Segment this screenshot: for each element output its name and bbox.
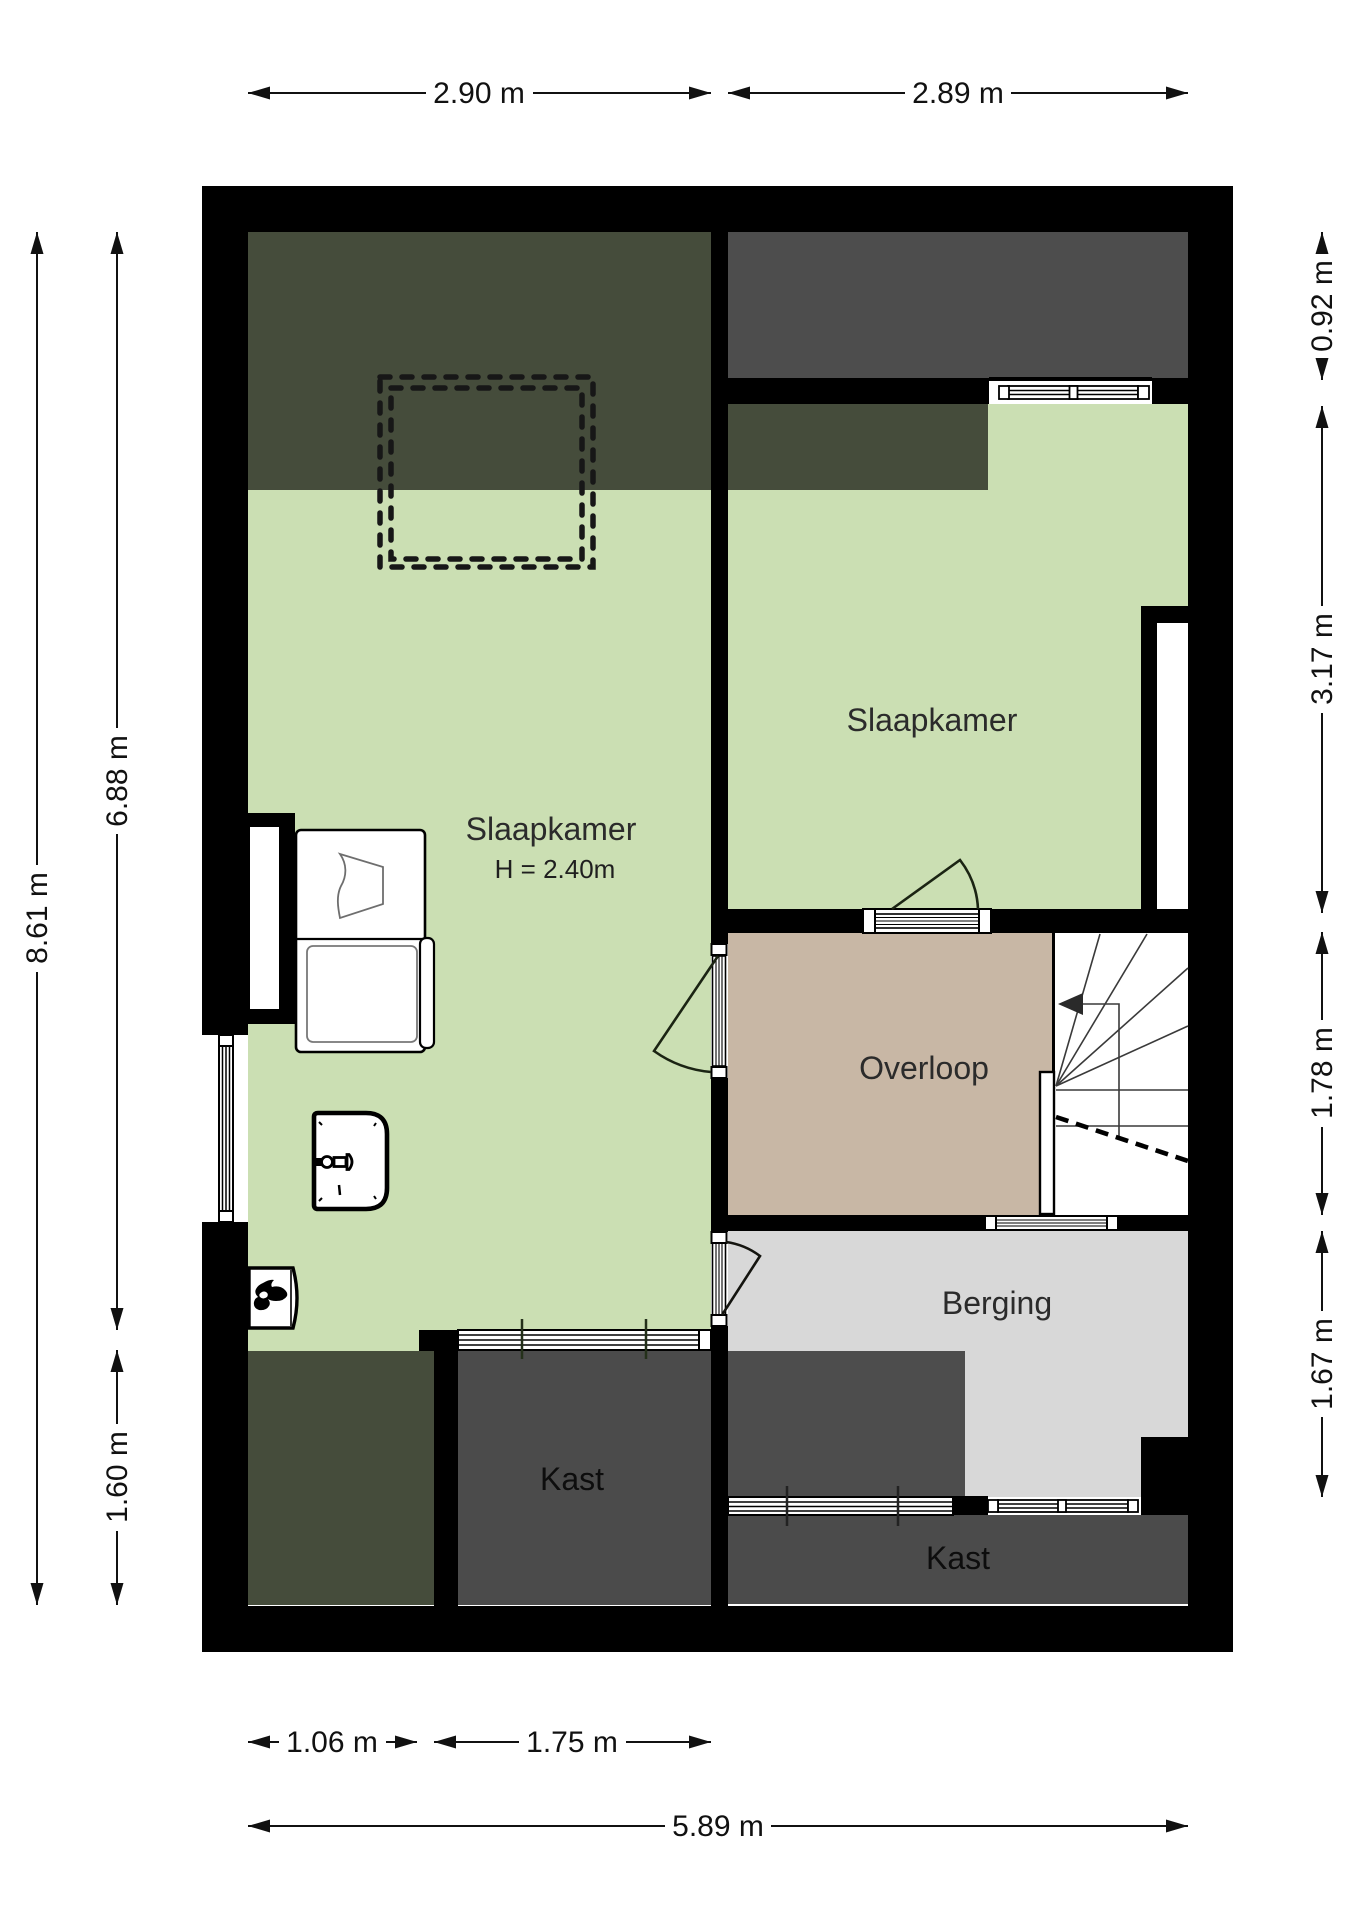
svg-text:Overloop: Overloop [859,1050,989,1086]
svg-text:2.89 m: 2.89 m [912,77,1004,110]
svg-text:1.67 m: 1.67 m [1306,1318,1339,1410]
svg-text:8.61 m: 8.61 m [21,872,54,964]
svg-text:2.90 m: 2.90 m [433,77,525,110]
svg-text:1.60 m: 1.60 m [101,1431,134,1523]
svg-text:6.88 m: 6.88 m [101,735,134,827]
svg-text:H = 2.40m: H = 2.40m [495,854,616,884]
svg-text:0.92 m: 0.92 m [1306,260,1339,352]
svg-text:Berging: Berging [942,1285,1052,1321]
svg-text:Kast: Kast [540,1461,604,1497]
svg-text:1.75 m: 1.75 m [526,1726,618,1759]
svg-text:5.89 m: 5.89 m [672,1810,764,1843]
svg-text:1.78 m: 1.78 m [1306,1027,1339,1119]
svg-text:Kast: Kast [926,1540,990,1576]
svg-text:3.17 m: 3.17 m [1306,613,1339,705]
svg-text:Slaapkamer: Slaapkamer [466,811,637,847]
svg-text:Slaapkamer: Slaapkamer [847,702,1018,738]
svg-text:1.06 m: 1.06 m [286,1726,378,1759]
